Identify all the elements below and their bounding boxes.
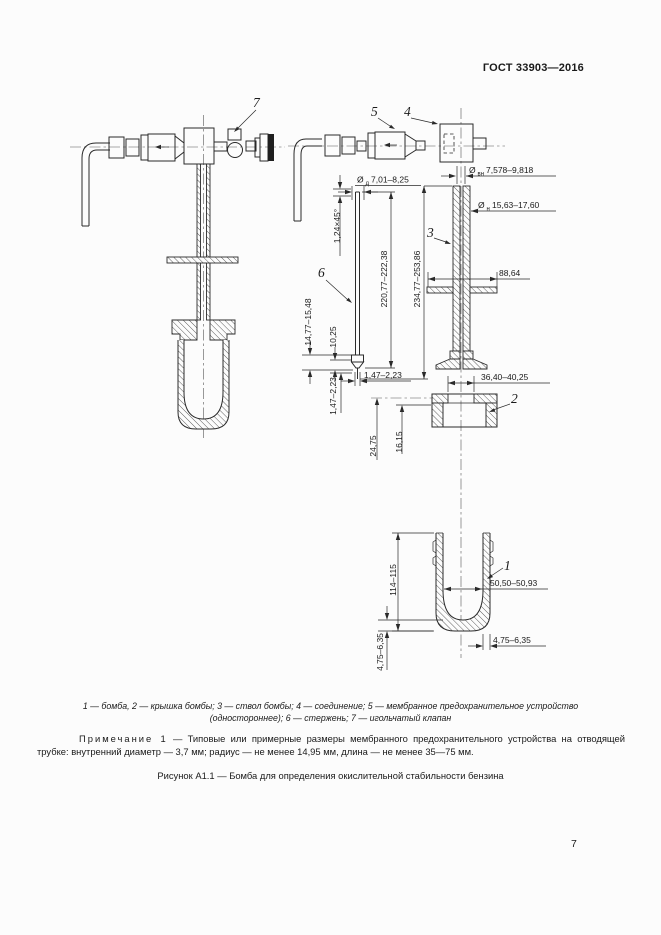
dim-overall-length: 234,77–253,86 [360, 186, 452, 379]
dim-tip-diameter-value: 1,47–2,23 [364, 370, 402, 380]
dim-inner-diameter: Ø вн 7,578–9,818 [441, 165, 556, 184]
dim-tip-pin-length: 10,25 [328, 326, 352, 382]
dim-wall-thickness-value: 4,75–6,35 [493, 635, 531, 645]
valve-body-block [184, 128, 274, 164]
dim-dia-d-prefix: Ø [357, 175, 364, 185]
dim-dia-d-sub: д [366, 181, 370, 187]
page-number: 7 [571, 838, 577, 850]
flange-assembled [167, 257, 238, 263]
note-paragraph: Примечание 1 — Типовые или примерные раз… [37, 733, 625, 758]
part-1-number: 1 [504, 558, 511, 573]
fittings-assembled [109, 134, 184, 161]
dim-tip-diameter: 1,47–2,23 [341, 370, 411, 386]
dim-cap-bore-value: 36,40–40,25 [481, 372, 529, 382]
dim-overall-length-value: 234,77–253,86 [412, 250, 422, 307]
figure-caption: Рисунок А1.1 — Бомба для определения оки… [0, 770, 661, 781]
dim-tip-pin-value: 10,25 [328, 326, 338, 348]
outlet-tube-exploded [294, 139, 322, 221]
part-label-5: 5 [371, 104, 395, 129]
dim-stem-length-value: 220,77–222,38 [379, 250, 389, 307]
part-6-number: 6 [318, 265, 325, 280]
dim-bottom-thickness-value: 4,75–6,35 [375, 633, 385, 671]
part-label-4: 4 [404, 104, 438, 125]
membrane-device [325, 132, 425, 159]
stem [352, 192, 364, 379]
dim-cap-bore: 36,40–40,25 [448, 372, 550, 392]
dim-dia-n-sub: н [487, 207, 490, 213]
dim-dia-n-prefix: Ø [478, 200, 485, 210]
dim-body-height-value: 114–115 [388, 564, 398, 596]
dim-wall-thickness: 4,75–6,35 [468, 634, 546, 650]
dim-bottom-thickness: 4,75–6,35 [375, 606, 443, 671]
dim-body-bore-value: 50,50–50,93 [490, 578, 538, 588]
dim-cap-depth-value: 16,15 [394, 431, 404, 453]
part-label-3: 3 [426, 225, 451, 244]
bomb-body [433, 533, 493, 631]
dim-dia-vn-prefix: Ø [469, 165, 476, 175]
dim-cap-height-value: 24,75 [368, 435, 378, 457]
part-label-1: 1 [487, 558, 511, 579]
dim-dia-vn-value: 7,578–9,818 [486, 165, 534, 175]
dim-flange-width-value: 88,64 [499, 268, 521, 278]
dim-tip-length-value: 14,77–15,48 [303, 298, 313, 346]
barrel [427, 186, 497, 369]
legend-line-2: (одностороннее); 6 — стержень; 7 — иголь… [40, 713, 621, 725]
part-label-7: 7 [234, 95, 261, 132]
dim-body-bore: 50,50–50,93 [444, 578, 548, 591]
document-page: ГОСТ 33903—2016 [0, 0, 661, 935]
part-2-number: 2 [511, 391, 518, 406]
dim-cap-depth: 16,15 [394, 405, 431, 454]
legend-line-1: 1 — бомба, 2 — крышка бомбы; 3 — ствол б… [40, 701, 621, 713]
dim-outer-diameter: Ø н 15,63–17,60 [471, 200, 556, 213]
connector-block [440, 124, 486, 162]
dim-chamfer: 1,24×45° [332, 175, 351, 256]
dim-dia-n-value: 15,63–17,60 [492, 200, 540, 210]
dim-flange-width: 88,64 [428, 268, 530, 287]
figure-a1-1-drawing: 7 [0, 0, 661, 935]
figure-legend: 1 — бомба, 2 — крышка бомбы; 3 — ствол б… [40, 701, 621, 724]
exploded-view: 5 4 Ø вн 7,578–9,818 [288, 104, 556, 671]
part-4-number: 4 [404, 104, 411, 119]
dim-tip-height-value: 1,47–2,23 [328, 377, 338, 415]
dim-body-height: 114–115 [388, 533, 434, 631]
part-5-number: 5 [371, 104, 378, 119]
dim-stem-length: 220,77–222,38 [362, 192, 395, 368]
outlet-tube [82, 143, 110, 226]
part-label-6: 6 [318, 265, 352, 303]
part-7-number: 7 [253, 95, 261, 110]
dim-dia-d-value: 7,01–8,25 [371, 175, 409, 185]
assembled-bomb-view: 7 [70, 95, 285, 440]
part-3-number: 3 [426, 225, 434, 240]
note-label: Примечание 1 [79, 733, 168, 744]
dim-dia-vn-sub: вн [478, 172, 485, 178]
cap [432, 394, 497, 427]
dim-chamfer-value: 1,24×45° [332, 209, 342, 243]
